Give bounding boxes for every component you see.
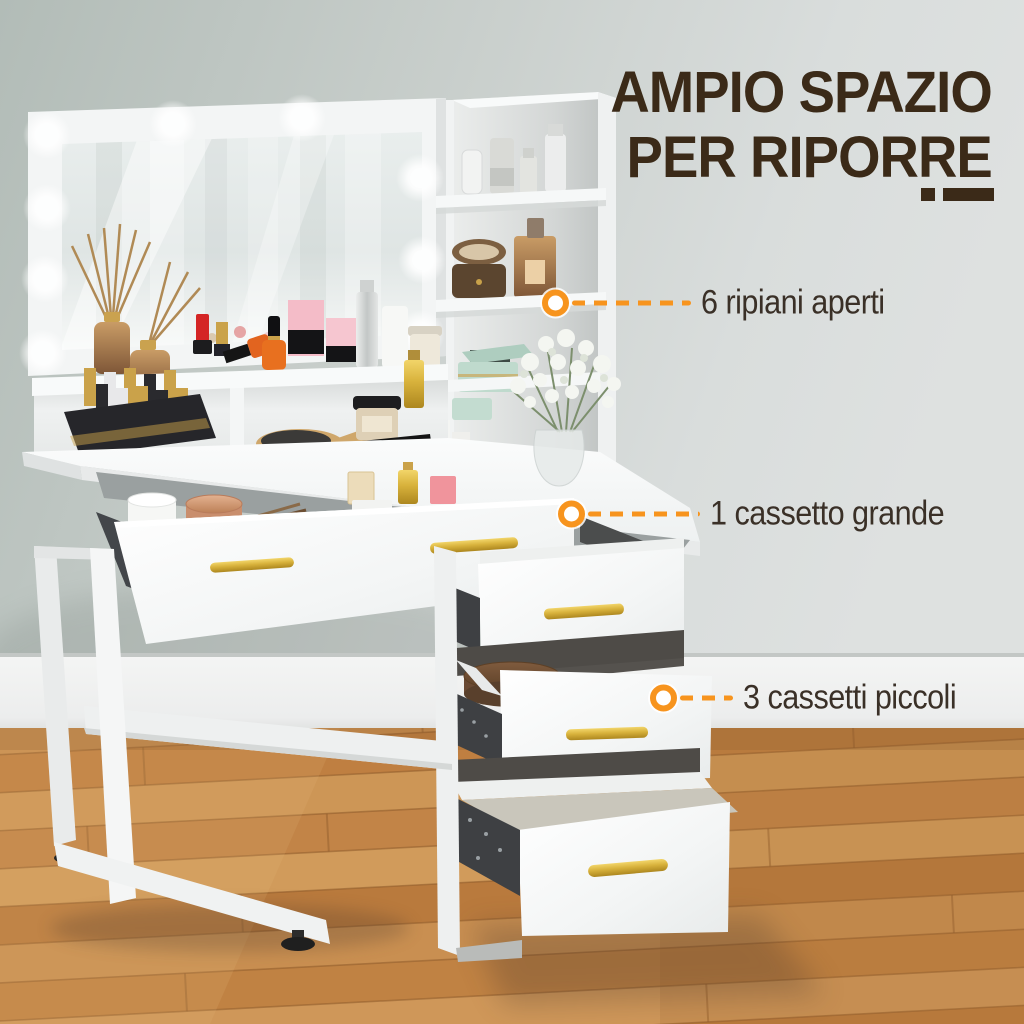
ring-dot-icon (558, 501, 585, 528)
product-marketing-image: AMPIO SPAZIO PER RIPORRE 6 ripiani apert… (0, 0, 1024, 1024)
page-title: AMPIO SPAZIO PER RIPORRE (611, 61, 992, 191)
hollywood-mirror (19, 94, 446, 377)
callout-label: 6 ripiani aperti (701, 284, 885, 323)
dashed-line (680, 696, 733, 701)
adjustable-foot (281, 937, 315, 951)
ring-dot-icon (650, 685, 677, 712)
title-line-1: AMPIO SPAZIO (611, 61, 992, 126)
lipstick (196, 314, 209, 342)
callout-label: 3 cassetti piccoli (743, 679, 956, 718)
callout-label: 1 cassetto grande (710, 495, 944, 534)
title-line-2: PER RIPORRE (611, 126, 992, 191)
ring-dot-icon (542, 290, 569, 317)
nail-polish (262, 340, 286, 370)
dashed-line (572, 301, 691, 306)
callout-large-drawer: 1 cassetto grande (558, 495, 970, 534)
title-dash-icon (921, 188, 994, 201)
diffuser-bottle (94, 322, 130, 374)
callout-open-shelves: 6 ripiani aperti (542, 284, 905, 323)
callout-small-drawers: 3 cassetti piccoli (650, 679, 980, 718)
dashed-line (588, 512, 700, 517)
